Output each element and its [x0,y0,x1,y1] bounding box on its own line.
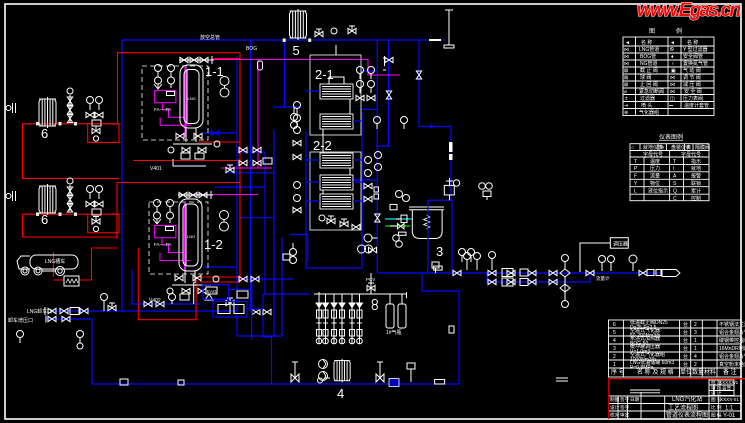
svg-text:1: 1 [694,338,697,344]
svg-text:V401: V401 [150,166,162,172]
svg-text:NG管道: NG管道 [640,60,658,67]
svg-text:3: 3 [694,330,697,336]
svg-text:2: 2 [694,322,697,328]
svg-text:隔膜阀: 隔膜阀 [695,144,710,151]
svg-text:铝合金翅片管式: 铝合金翅片管式 [719,353,745,360]
svg-text:流量: 流量 [650,173,660,180]
svg-text:1:1: 1:1 [725,406,734,412]
svg-text:LNG管道: LNG管道 [639,46,659,53]
svg-text:±: ± [625,96,628,102]
svg-text:Y-01: Y-01 [723,413,736,419]
svg-text:⋈: ⋈ [670,82,675,88]
svg-text:1#气瓶: 1#气瓶 [386,329,402,336]
svg-text:真空粉末绝热: 真空粉末绝热 [719,361,745,368]
svg-text:气 动 阀: 气 动 阀 [683,67,701,74]
svg-text:止 回 阀: 止 回 阀 [640,81,658,88]
svg-text:图: 图 [649,28,655,35]
svg-text:♀: ♀ [671,61,675,67]
svg-text:4: 4 [337,386,344,401]
svg-text:流量计: 流量计 [596,275,610,282]
svg-text:⋈: ⋈ [670,75,675,81]
svg-text:2-1: 2-1 [315,67,334,82]
svg-text:审定: 审定 [620,412,630,419]
svg-text:4: 4 [694,354,697,360]
svg-text:EAG: EAG [207,289,217,294]
svg-text:⊛: ⊛ [624,110,628,116]
svg-text:签字: 签字 [620,404,630,410]
svg-text:温度计套管: 温度计套管 [684,102,709,109]
svg-text:压力: 压力 [650,165,660,172]
svg-text:◫: ◫ [670,96,675,102]
svg-text:台: 台 [683,353,688,360]
svg-text:1: 1 [613,362,616,368]
svg-text:喷 头: 喷 头 [641,102,652,109]
svg-text:Q: Q [673,189,677,195]
svg-text:XXXXX/1: XXXXX/1 [719,380,739,385]
svg-text:序 号: 序 号 [611,368,625,376]
svg-text:名 称: 名 称 [641,39,652,46]
svg-text:校对: 校对 [610,412,620,419]
svg-text:备 注: 备 注 [723,368,737,376]
svg-text:1-2: 1-2 [204,237,223,252]
svg-text:www.Egas.cn: www.Egas.cn [637,0,741,21]
svg-text:LNG汽化站: LNG汽化站 [672,395,702,403]
svg-text:台: 台 [683,329,688,336]
svg-text:C: C [673,196,677,202]
svg-text:⊠: ⊠ [624,82,628,88]
svg-text:名 称 及 规 格: 名 称 及 规 格 [637,368,674,376]
svg-text:⇥: ⇥ [624,103,628,109]
svg-text:4: 4 [613,338,616,344]
svg-text:5: 5 [293,43,300,58]
svg-text:6: 6 [613,322,616,328]
svg-text:⋈: ⋈ [624,54,629,60]
svg-text:6: 6 [41,126,48,141]
svg-text:单位: 单位 [680,368,692,376]
svg-text:FA──PA: FA──PA [154,242,172,247]
svg-text:FA──PA: FA──PA [154,107,172,112]
svg-text:不锈钢法兰连接: 不锈钢法兰连接 [719,321,745,328]
svg-text:PCV: PCV [366,277,375,282]
svg-text:调压器: 调压器 [613,241,628,248]
svg-text:1: 1 [694,346,697,352]
svg-text:⎓: ⎓ [669,103,673,109]
svg-text:T: T [634,159,637,165]
svg-text:▣: ▣ [671,68,676,74]
svg-text:液位指示: 液位指示 [648,188,668,195]
svg-text:设计: 设计 [610,404,620,411]
svg-text:◄: ◄ [625,40,630,46]
svg-text:F: F [634,174,637,180]
svg-text:○: ○ [631,145,634,151]
svg-text:控制: 控制 [691,195,701,202]
svg-text:6: 6 [41,212,48,227]
svg-text:温度: 温度 [650,158,660,165]
svg-text:⋈: ⋈ [670,89,675,95]
svg-text:♦: ♦ [671,54,674,60]
svg-text:铝合金翅片管式: 铝合金翅片管式 [719,329,745,336]
svg-text:XXXX-01: XXXX-01 [720,397,739,402]
svg-text:紧急切断阀: 紧急切断阀 [639,88,664,95]
svg-text:⊠: ⊠ [624,75,628,81]
svg-text:指示: 指示 [691,158,701,165]
svg-text:图 幅: 图 幅 [711,412,722,419]
svg-text:◄: ◄ [670,40,675,46]
svg-text:比 例: 比 例 [711,404,722,411]
svg-text:数量: 数量 [692,368,704,376]
svg-text:⊠: ⊠ [624,68,628,74]
svg-text:⊖: ⊖ [660,145,664,151]
svg-text:就地: 就地 [691,165,701,172]
svg-text:⊜: ⊜ [686,145,690,151]
svg-text:累计: 累计 [691,188,701,195]
svg-text:制图: 制图 [610,396,620,403]
svg-text:碳钢带控温装置: 碳钢带控温装置 [719,337,745,344]
svg-text:⋈: ⋈ [624,61,629,67]
svg-text:台: 台 [683,321,688,328]
svg-text:调 节 阀: 调 节 阀 [683,74,701,81]
svg-text:LNG: LNG [188,96,196,101]
svg-text:卸车增压口: 卸车增压口 [8,317,33,324]
svg-text:例: 例 [676,27,682,35]
svg-text:台: 台 [683,345,688,352]
svg-text:LNG: LNG [187,234,195,239]
svg-text:球 阀: 球 阀 [640,74,651,81]
svg-text:工艺流程图: 工艺流程图 [668,404,698,412]
svg-text:字母代号: 字母代号 [681,151,701,158]
svg-text:签字: 签字 [620,396,630,402]
svg-text:报警: 报警 [691,173,701,180]
svg-text:管道仪表流程图: 管道仪表流程图 [666,411,708,419]
svg-text:3: 3 [436,244,443,259]
svg-text:2: 2 [613,354,616,360]
svg-text:3: 3 [613,346,616,352]
svg-text:仪表图例: 仪表图例 [659,133,683,141]
svg-text:2-2: 2-2 [313,138,332,153]
svg-text:⌀: ⌀ [624,89,627,95]
svg-text:安 全 阀: 安 全 阀 [684,88,702,95]
svg-text:L: L [634,189,637,195]
svg-text:Y 型过滤器: Y 型过滤器 [683,46,708,53]
svg-text:置换氮气管: 置换氮气管 [683,60,708,67]
svg-text:台: 台 [683,361,688,368]
svg-text:会签: 会签 [722,385,732,392]
svg-text:气化器组: 气化器组 [639,109,659,116]
svg-text:过滤器: 过滤器 [640,95,655,102]
svg-text:字母代号: 字母代号 [643,151,663,158]
svg-text:设 计: 设 计 [711,390,722,397]
svg-text:联锁: 联锁 [691,180,701,187]
svg-text:Ꮻ: Ꮻ [670,47,674,53]
svg-text:BOG: BOG [246,46,257,52]
svg-text:T: T [673,159,676,165]
svg-text:2: 2 [694,362,697,368]
svg-text:材料: 材料 [704,368,716,376]
svg-text:减 压 阀: 减 压 阀 [683,81,701,88]
svg-text:名 称: 名 称 [687,39,698,46]
svg-text:⋈: ⋈ [624,47,629,53]
svg-text:安全阀管: 安全阀管 [683,53,703,60]
svg-text:I: I [673,166,674,172]
svg-text:台: 台 [683,337,688,344]
svg-text:物位: 物位 [650,180,660,187]
svg-text:BOG管: BOG管 [640,53,656,60]
svg-text:16MnDR制造: 16MnDR制造 [719,345,745,352]
svg-text:截 止 阀: 截 止 阀 [640,67,658,74]
svg-text:5: 5 [613,330,616,336]
svg-text:压力表阀: 压力表阀 [683,95,703,102]
svg-text:放空总管: 放空总管 [200,34,220,41]
svg-text:LNG槽车: LNG槽车 [45,258,65,265]
